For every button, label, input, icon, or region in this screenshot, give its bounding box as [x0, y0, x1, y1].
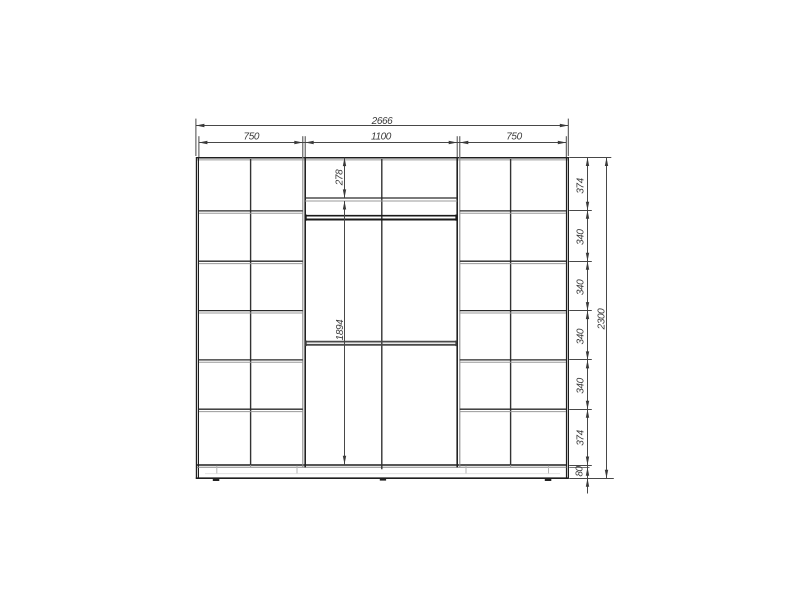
svg-text:340: 340 — [576, 328, 587, 344]
svg-text:2666: 2666 — [371, 116, 393, 127]
svg-text:374: 374 — [576, 429, 587, 445]
svg-text:340: 340 — [576, 377, 587, 393]
svg-text:340: 340 — [576, 279, 587, 295]
svg-text:1100: 1100 — [371, 132, 392, 143]
svg-text:1894: 1894 — [335, 319, 346, 340]
svg-text:80: 80 — [574, 466, 585, 477]
svg-text:750: 750 — [244, 132, 260, 143]
svg-text:750: 750 — [506, 132, 522, 143]
svg-text:2300: 2300 — [596, 308, 607, 330]
svg-text:340: 340 — [576, 229, 587, 245]
svg-text:278: 278 — [334, 169, 345, 186]
svg-text:374: 374 — [576, 177, 587, 193]
